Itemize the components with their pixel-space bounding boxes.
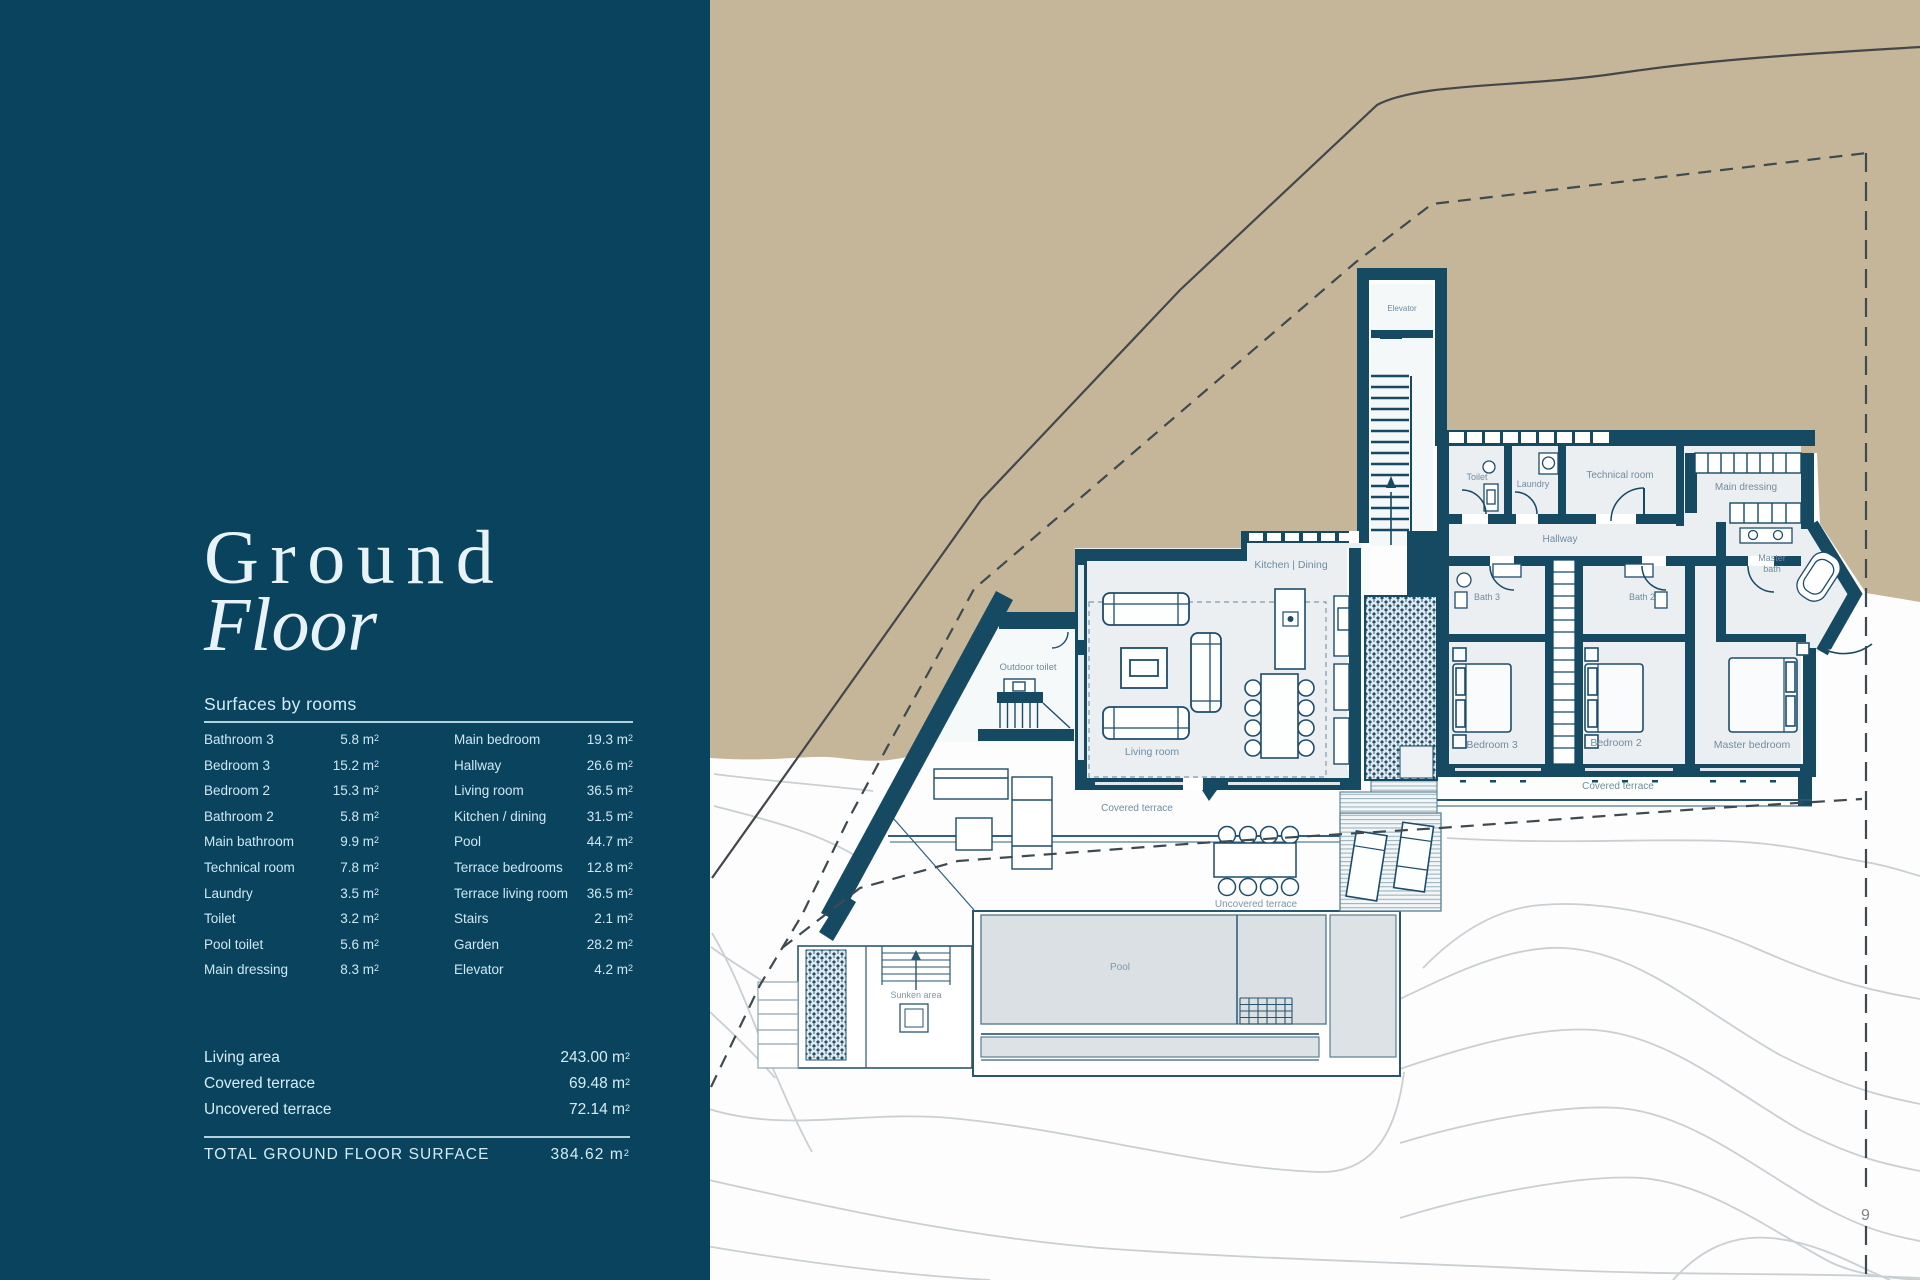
svg-text:Technical room: Technical room <box>1586 470 1653 481</box>
svg-text:Toilet: Toilet <box>1466 472 1488 482</box>
svg-text:bath: bath <box>1763 564 1781 574</box>
svg-text:Living room: Living room <box>1125 746 1180 758</box>
svg-text:Pool: Pool <box>1110 962 1130 973</box>
svg-text:Bedroom 2: Bedroom 2 <box>1590 737 1642 749</box>
svg-text:Bedroom 3: Bedroom 3 <box>1466 739 1518 751</box>
svg-text:Laundry: Laundry <box>1517 479 1550 489</box>
svg-text:Covered terrace: Covered terrace <box>1101 803 1173 814</box>
svg-text:Bath 3: Bath 3 <box>1474 592 1500 602</box>
svg-text:Sunken area: Sunken area <box>890 990 941 1000</box>
svg-text:9: 9 <box>1861 1207 1870 1224</box>
svg-text:Master: Master <box>1758 553 1786 563</box>
svg-text:Master bedroom: Master bedroom <box>1714 739 1791 751</box>
svg-text:Kitchen | Dining: Kitchen | Dining <box>1254 559 1328 571</box>
svg-text:Bath 2: Bath 2 <box>1629 592 1655 602</box>
svg-text:Outdoor toilet: Outdoor toilet <box>999 662 1056 673</box>
svg-text:Hallway: Hallway <box>1542 534 1577 545</box>
svg-text:Uncovered terrace: Uncovered terrace <box>1215 899 1298 910</box>
svg-text:Covered terrace: Covered terrace <box>1582 781 1654 792</box>
svg-text:Elevator: Elevator <box>1387 304 1417 313</box>
svg-text:Main dressing: Main dressing <box>1715 482 1777 493</box>
